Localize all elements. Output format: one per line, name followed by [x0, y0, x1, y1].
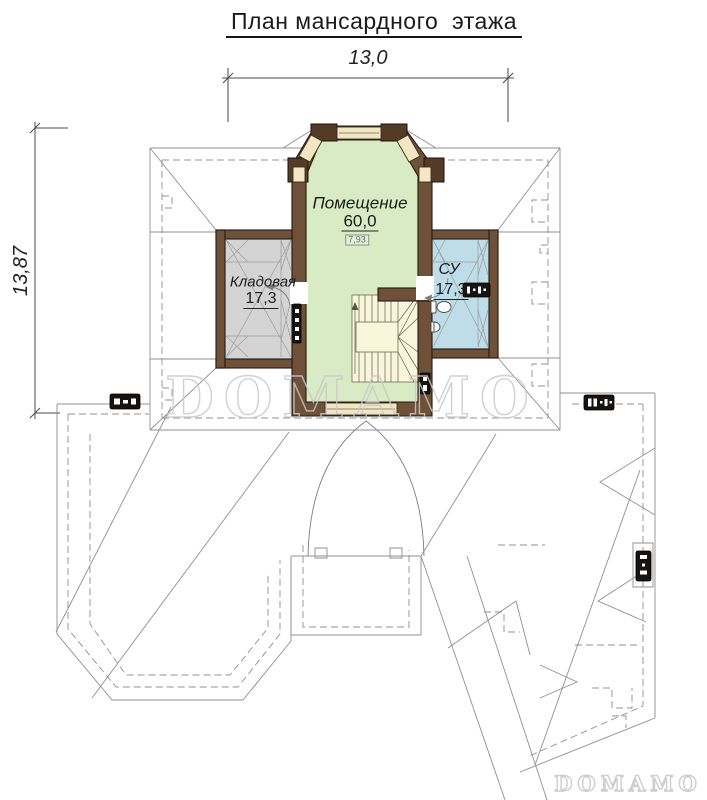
bathroom-area: 17,3	[433, 282, 468, 300]
main-room-area: 60,0	[341, 213, 378, 232]
lower-roof-outline	[56, 393, 655, 800]
elevation-mark: 7,93	[345, 235, 369, 246]
sink-icon	[431, 322, 440, 332]
bathroom-name: СУ	[439, 262, 460, 278]
dimension-height-label: 13,87	[11, 246, 31, 296]
watermark-main: DOMAMO	[165, 365, 539, 431]
watermark-footer: DOMAMO	[554, 771, 702, 796]
floor-plan-page: DOMAMO DOMAMO План мансардного этажа 13,…	[0, 0, 707, 800]
toilet-icon	[431, 301, 451, 313]
chimney-icon	[636, 551, 651, 581]
chimney-icon	[584, 395, 614, 410]
chimney-icon	[110, 394, 140, 409]
dimension-width-label: 13,0	[349, 48, 388, 68]
floor-plan-drawing: DOMAMO DOMAMO	[0, 0, 707, 800]
storage-room-name: Кладовая	[230, 275, 296, 290]
vent-grille-icon	[293, 304, 301, 343]
storage-room-area: 17,3	[243, 291, 278, 309]
page-title: План мансардного этажа	[226, 10, 522, 38]
main-room-name: Помещение	[312, 195, 407, 212]
